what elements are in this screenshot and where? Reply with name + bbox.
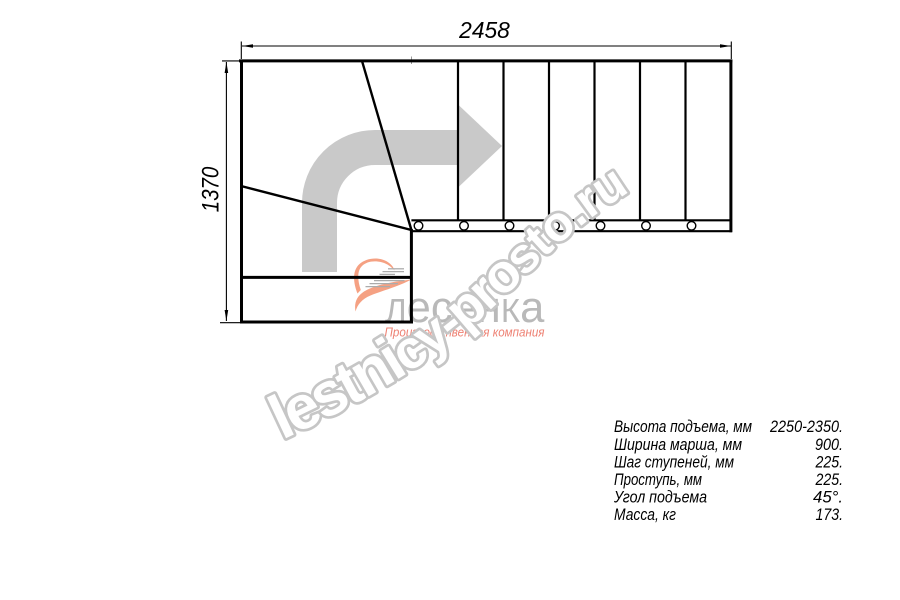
svg-text:Ширина марша, мм: Ширина марша, мм [614, 435, 742, 454]
svg-text:900.: 900. [815, 435, 843, 454]
svg-text:Высота подъема, мм: Высота подъема, мм [614, 417, 752, 436]
svg-text:173.: 173. [816, 505, 844, 524]
svg-text:225.: 225. [815, 470, 843, 489]
svg-text:2458: 2458 [458, 17, 510, 43]
svg-text:2250-2350.: 2250-2350. [769, 417, 843, 436]
svg-text:45°.: 45°. [813, 488, 843, 507]
svg-text:Угол подъема: Угол подъема [613, 488, 707, 507]
svg-text:Масса, кг: Масса, кг [614, 505, 676, 524]
svg-text:Проступь, мм: Проступь, мм [614, 470, 702, 489]
svg-text:1370: 1370 [197, 166, 224, 212]
svg-text:Шаг ступеней, мм: Шаг ступеней, мм [614, 452, 734, 471]
svg-text:225.: 225. [815, 452, 843, 471]
